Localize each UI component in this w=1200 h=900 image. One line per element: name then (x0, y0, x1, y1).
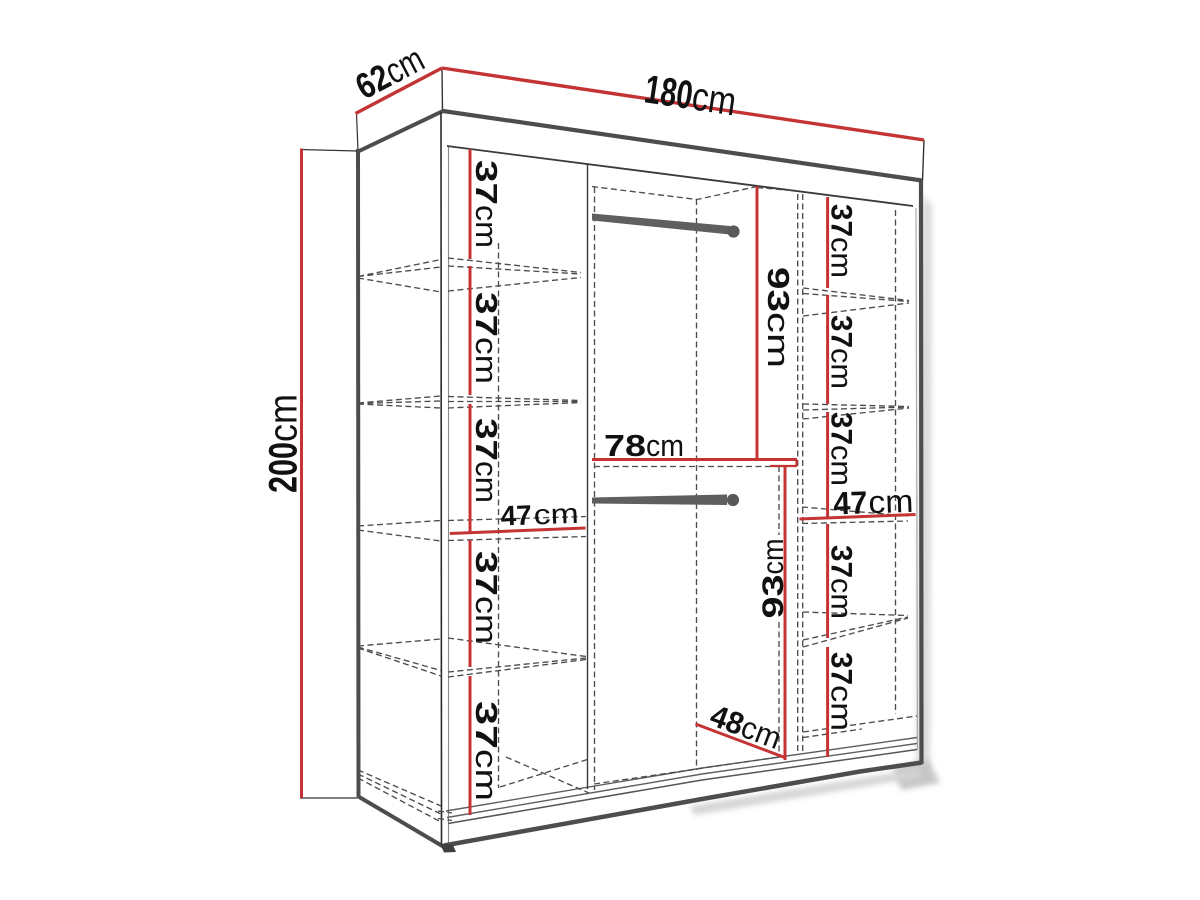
svg-text:37cm: 37cm (469, 551, 504, 644)
svg-text:47cm: 47cm (500, 498, 579, 532)
svg-text:93cm: 93cm (757, 539, 790, 619)
svg-text:37cm: 37cm (825, 412, 858, 486)
svg-text:37cm: 37cm (469, 418, 504, 503)
svg-text:48cm: 48cm (706, 698, 787, 756)
svg-text:37cm: 37cm (469, 160, 504, 248)
svg-text:37cm: 37cm (825, 315, 858, 389)
svg-text:37cm: 37cm (825, 545, 858, 619)
svg-text:37cm: 37cm (825, 204, 858, 278)
svg-text:37cm: 37cm (469, 701, 504, 801)
svg-text:200cm: 200cm (262, 394, 306, 493)
svg-text:37cm: 37cm (469, 292, 504, 384)
svg-text:78cm: 78cm (604, 428, 684, 463)
svg-text:93cm: 93cm (761, 267, 796, 368)
svg-text:37cm: 37cm (825, 652, 858, 731)
svg-text:47cm: 47cm (833, 483, 914, 522)
svg-text:180cm: 180cm (642, 67, 739, 124)
